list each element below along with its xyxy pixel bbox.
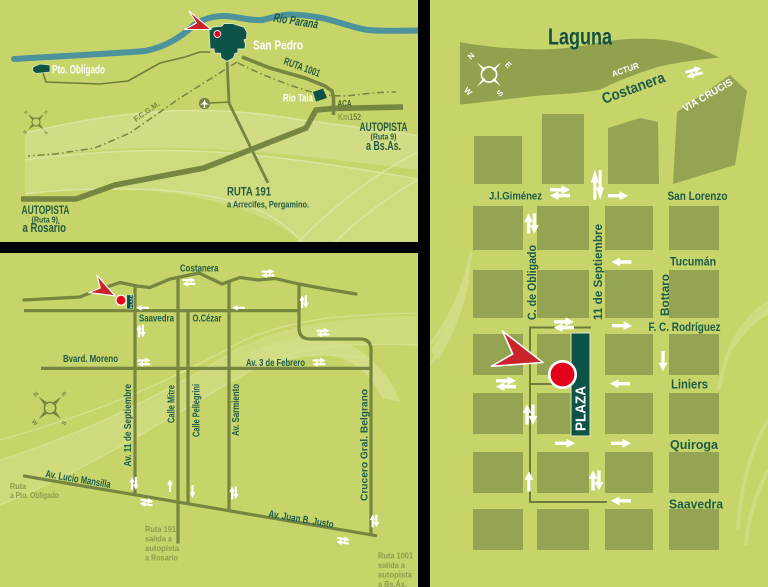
svg-text:autopista: autopista bbox=[378, 571, 413, 580]
svg-text:Saavedra: Saavedra bbox=[139, 314, 174, 325]
svg-text:Crucero Gral. Belgrano: Crucero Gral. Belgrano bbox=[360, 389, 371, 501]
svg-text:Av. 3 de Febrero: Av. 3 de Febrero bbox=[246, 358, 305, 369]
svg-text:San Pedro: San Pedro bbox=[253, 38, 303, 53]
svg-text:autopista: autopista bbox=[145, 544, 180, 553]
svg-text:RUTA 191: RUTA 191 bbox=[227, 187, 271, 199]
svg-text:Laguna: Laguna bbox=[548, 24, 612, 50]
svg-text:ACA: ACA bbox=[338, 99, 352, 110]
svg-text:Liniers: Liniers bbox=[671, 377, 708, 392]
svg-text:Río Tala: Río Tala bbox=[283, 93, 314, 105]
svg-text:F. C. Rodríguez: F. C. Rodríguez bbox=[649, 322, 721, 334]
svg-text:Calle Pellegrini: Calle Pellegrini bbox=[192, 384, 203, 437]
svg-text:PLAZA: PLAZA bbox=[128, 295, 133, 308]
svg-text:Bvard. Moreno: Bvard. Moreno bbox=[63, 354, 118, 365]
svg-text:O.Cézar: O.Cézar bbox=[193, 314, 222, 325]
svg-text:Pto. Obligado: Pto. Obligado bbox=[52, 65, 105, 77]
svg-text:Av. Sarmiento: Av. Sarmiento bbox=[231, 384, 242, 436]
svg-text:Saavedra: Saavedra bbox=[669, 497, 724, 512]
svg-text:Tucumán: Tucumán bbox=[670, 255, 716, 269]
svg-text:PLAZA: PLAZA bbox=[574, 386, 590, 431]
svg-text:a Rosario: a Rosario bbox=[23, 221, 67, 235]
svg-text:a Pto. Obligado: a Pto. Obligado bbox=[10, 491, 59, 500]
svg-text:Av. 11 de Septiembre: Av. 11 de Septiembre bbox=[123, 384, 134, 467]
svg-text:Ruta 1001: Ruta 1001 bbox=[378, 552, 414, 561]
svg-text:J.l.Giménez: J.l.Giménez bbox=[489, 191, 542, 203]
svg-text:a Rosario: a Rosario bbox=[145, 554, 178, 563]
svg-text:a Bs.Ás.: a Bs.Ás. bbox=[378, 580, 407, 587]
svg-text:a Bs.As.: a Bs.As. bbox=[366, 139, 401, 153]
svg-text:Costanera: Costanera bbox=[180, 264, 219, 275]
svg-text:Ruta 191: Ruta 191 bbox=[145, 525, 177, 534]
svg-text:salida a: salida a bbox=[378, 561, 405, 570]
svg-text:Ruta: Ruta bbox=[10, 482, 26, 491]
svg-text:11 de Septiembre: 11 de Septiembre bbox=[591, 224, 605, 320]
svg-text:Bottaro: Bottaro bbox=[658, 274, 672, 316]
svg-text:San Lorenzo: San Lorenzo bbox=[668, 189, 728, 203]
svg-text:Calle Mitre: Calle Mitre bbox=[167, 385, 178, 423]
svg-text:C. de Obligado: C. de Obligado bbox=[525, 245, 539, 320]
svg-text:a Arrecifes, Pergamino.: a Arrecifes, Pergamino. bbox=[227, 200, 309, 211]
svg-text:Km152: Km152 bbox=[338, 112, 361, 123]
svg-text:Quiroga: Quiroga bbox=[670, 437, 719, 452]
svg-text:salida a: salida a bbox=[145, 535, 172, 544]
